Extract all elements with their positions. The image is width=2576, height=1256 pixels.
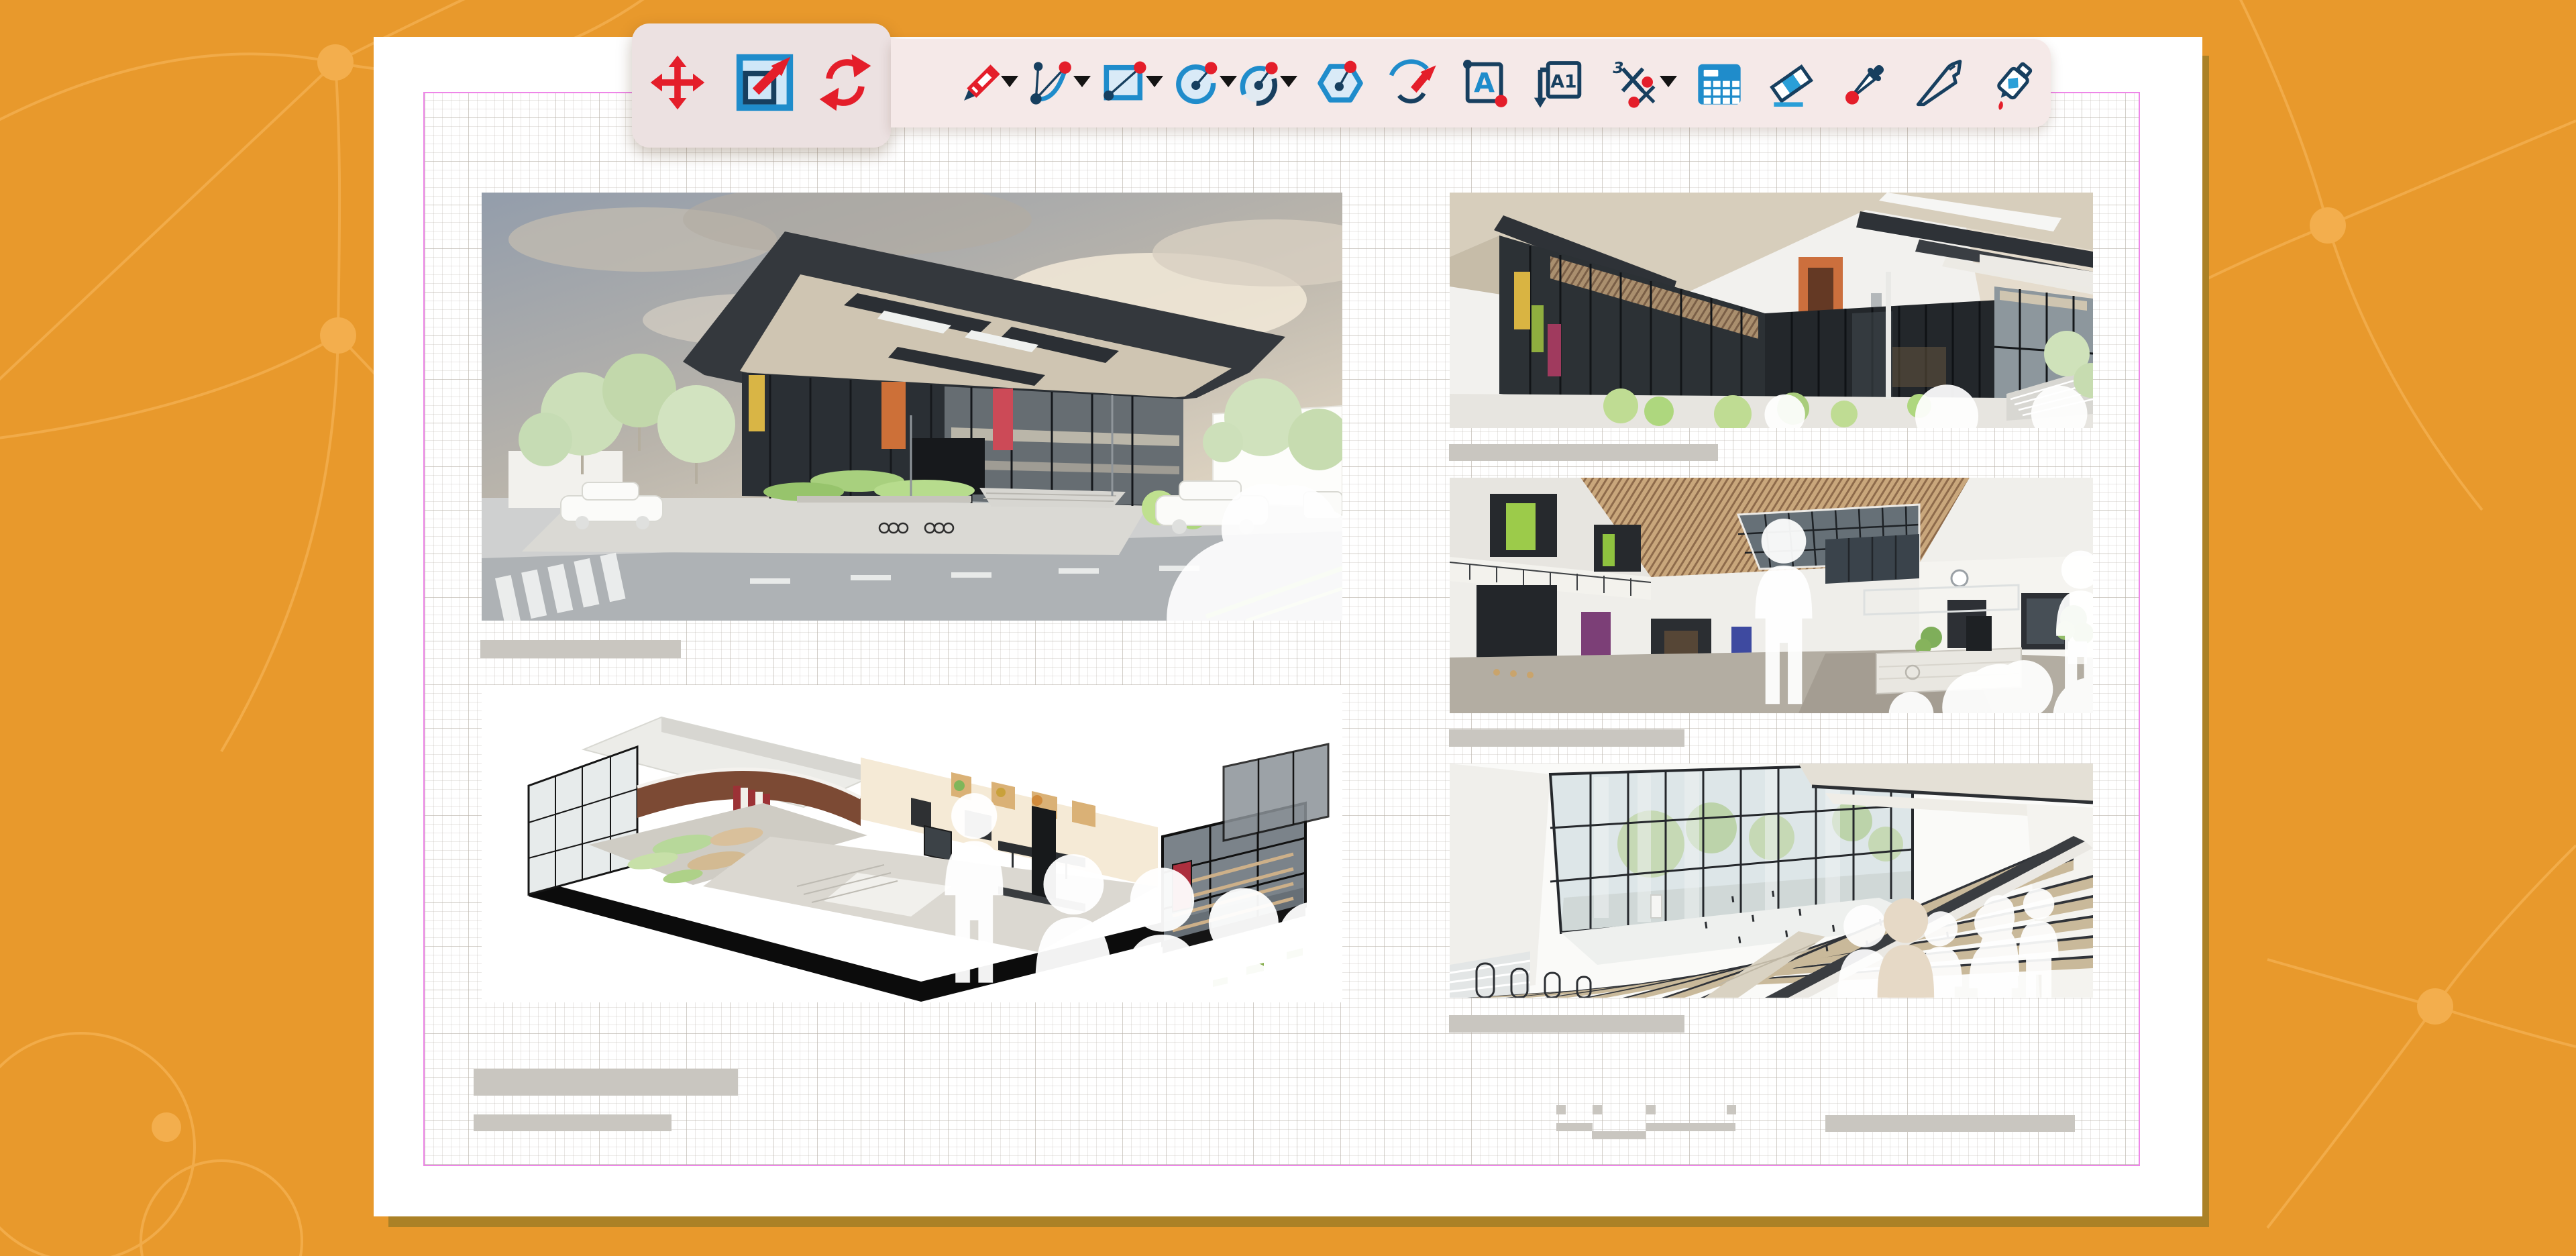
multiply-dimension-icon: 3 (1606, 56, 1660, 110)
polyline-tool-button[interactable] (1024, 56, 1077, 110)
caption-placeholder-exterior[interactable] (480, 640, 681, 658)
image-auditorium-rendering[interactable] (1450, 764, 2093, 998)
text-tool-button[interactable]: A (1456, 56, 1510, 110)
rectangle-tool-dropdown-arrow[interactable] (1146, 76, 1163, 87)
svg-text:A: A (1474, 68, 1495, 99)
move-icon (647, 52, 708, 113)
glue-tool-button[interactable] (1986, 56, 2040, 110)
text-placeholder-title-bar[interactable] (474, 1069, 738, 1096)
ellipse-tool-dropdown-arrow[interactable] (1280, 76, 1297, 87)
knife-tool-button[interactable] (1913, 56, 1966, 110)
svg-text:A1: A1 (1550, 72, 1576, 93)
rectangle-tool-button[interactable] (1097, 56, 1151, 110)
image-courtyard-rendering[interactable] (1450, 193, 2093, 428)
svg-text:3: 3 (1613, 58, 1623, 77)
line-tool-dropdown-arrow[interactable] (1001, 76, 1018, 87)
circle-icon (1171, 56, 1225, 110)
rectangle-icon (1097, 56, 1151, 110)
arc-icon (1385, 56, 1438, 110)
caption-placeholder-atrium[interactable] (1449, 729, 1684, 747)
knife-icon (1913, 56, 1966, 110)
eraser-icon (1765, 56, 1819, 110)
circle-tool-button[interactable] (1171, 56, 1225, 110)
polyline-icon (1024, 56, 1077, 110)
arc-tool-button[interactable] (1385, 56, 1438, 110)
numbered-text-icon: A1 (1530, 56, 1584, 110)
polygon-tool-button[interactable] (1313, 56, 1367, 110)
multiply-dimension-tool-button[interactable]: 3 (1606, 56, 1660, 110)
rotate-icon (814, 52, 876, 113)
text-icon: A (1456, 56, 1510, 110)
caption-placeholder-auditorium[interactable] (1449, 1015, 1684, 1033)
ellipse-icon (1233, 56, 1287, 110)
application-window: A A1 3 (0, 0, 2576, 1256)
text-placeholder-footer-bar[interactable] (1825, 1115, 2075, 1132)
eraser-tool-button[interactable] (1765, 56, 1819, 110)
ellipse-tool-button[interactable] (1233, 56, 1287, 110)
caption-placeholder-courtyard[interactable] (1449, 444, 1718, 461)
numbered-text-tool-button[interactable]: A1 (1530, 56, 1584, 110)
rotate-tool-button[interactable] (814, 52, 876, 113)
table-icon (1693, 56, 1746, 110)
polygon-icon (1313, 56, 1367, 110)
eyedropper-icon (1839, 56, 1892, 110)
eyedropper-tool-button[interactable] (1839, 56, 1892, 110)
table-tool-button[interactable] (1693, 56, 1746, 110)
image-atrium-interior-rendering[interactable] (1450, 478, 2093, 713)
scale-icon (734, 52, 796, 113)
text-placeholder-subtitle-bar[interactable] (474, 1114, 672, 1131)
scale-tool-button[interactable] (734, 52, 796, 113)
multiply-tool-dropdown-arrow[interactable] (1660, 76, 1677, 87)
move-tool-button[interactable] (647, 52, 708, 113)
polyline-tool-dropdown-arrow[interactable] (1073, 76, 1091, 87)
pencil-icon (955, 56, 1008, 110)
image-exterior-street-rendering[interactable] (482, 193, 1342, 621)
line-pencil-tool-button[interactable] (955, 56, 1008, 110)
glue-icon (1986, 56, 2040, 110)
image-axonometric-section-rendering[interactable] (482, 685, 1342, 1002)
